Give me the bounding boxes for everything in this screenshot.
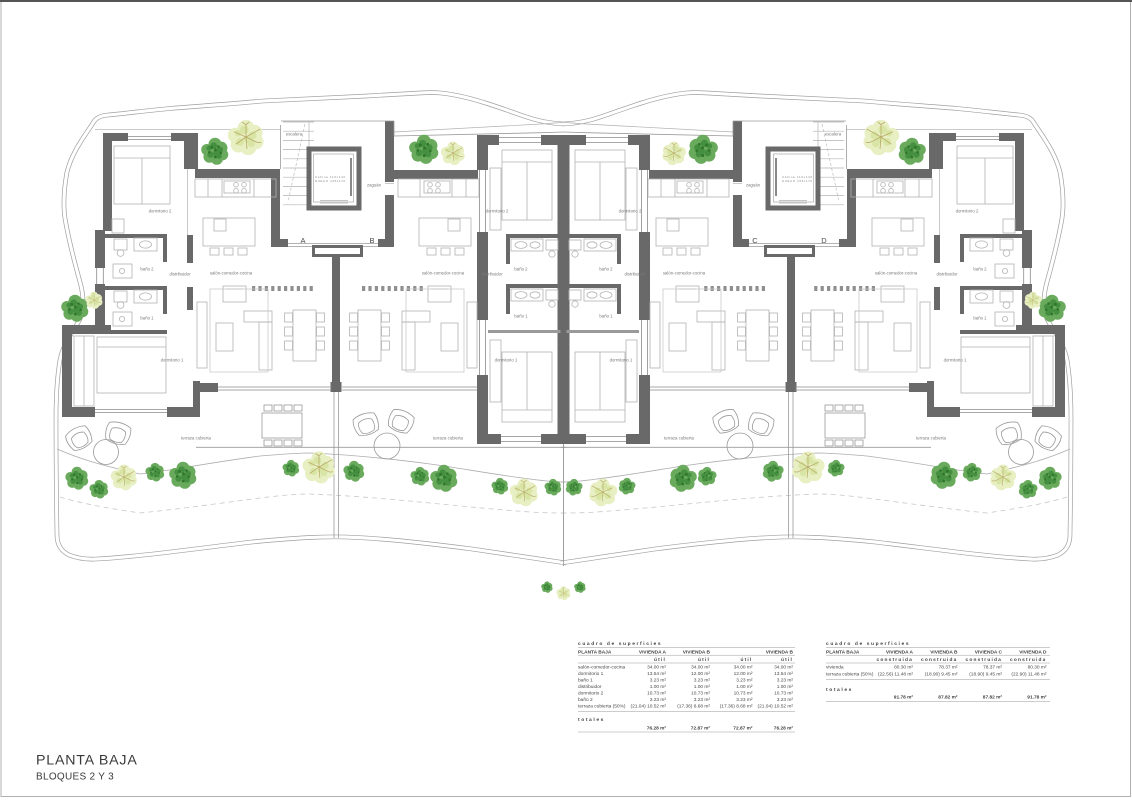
svg-text:(21.04) 10.52 m²: (21.04) 10.52 m²	[758, 704, 794, 710]
svg-text:totales: totales	[578, 717, 605, 723]
svg-text:útil: útil	[654, 657, 666, 663]
svg-text:dormitorio 2: dormitorio 2	[578, 691, 604, 697]
svg-text:PLANTA BAJA: PLANTA BAJA	[578, 650, 612, 656]
svg-text:34.00 m²: 34.00 m²	[647, 665, 666, 671]
svg-text:3.23 m²: 3.23 m²	[650, 697, 667, 703]
svg-text:80.30 m²: 80.30 m²	[894, 665, 913, 671]
svg-text:cuadro de superficies: cuadro de superficies	[826, 641, 910, 647]
svg-text:dormitorio 1: dormitorio 1	[578, 671, 604, 677]
svg-text:dormitorio 2: dormitorio 2	[486, 209, 509, 214]
svg-text:10.73 m²: 10.73 m²	[774, 691, 793, 697]
svg-text:VIVIENDA C: VIVIENDA C	[975, 650, 1003, 656]
svg-text:útil: útil	[698, 657, 710, 663]
svg-text:distribuidor: distribuidor	[578, 684, 602, 690]
svg-text:terraza cubierta (50%): terraza cubierta (50%)	[578, 704, 626, 710]
svg-text:76.28 m²: 76.28 m²	[774, 726, 794, 732]
svg-text:3.23 m²: 3.23 m²	[777, 697, 794, 703]
svg-text:dormitorio 2: dormitorio 2	[149, 209, 172, 214]
svg-text:escalera: escalera	[286, 132, 303, 137]
svg-text:totales: totales	[826, 687, 853, 693]
svg-text:87.82 m²: 87.82 m²	[938, 695, 958, 701]
svg-text:baño 1: baño 1	[973, 316, 987, 321]
svg-text:12.00 m²: 12.00 m²	[734, 671, 753, 677]
svg-text:10.73 m²: 10.73 m²	[734, 691, 753, 697]
svg-text:10.73 m²: 10.73 m²	[691, 691, 710, 697]
svg-text:VIVIENDA B: VIVIENDA B	[683, 650, 711, 656]
svg-text:(22.56) 11.48 m²: (22.56) 11.48 m²	[878, 672, 914, 678]
svg-text:zaguán: zaguán	[746, 183, 761, 188]
svg-text:(17.36) 8.68 m²: (17.36) 8.68 m²	[677, 704, 710, 710]
svg-text:distribuidor: distribuidor	[481, 272, 503, 277]
svg-text:VIVIENDA B: VIVIENDA B	[766, 650, 794, 656]
svg-text:VIVIENDA B: VIVIENDA B	[930, 650, 958, 656]
svg-text:baño 2: baño 2	[514, 267, 528, 272]
svg-text:13.54 m²: 13.54 m²	[647, 671, 666, 677]
svg-text:34.00 m²: 34.00 m²	[774, 665, 793, 671]
svg-text:baño 2: baño 2	[599, 267, 613, 272]
svg-text:10.73 m²: 10.73 m²	[647, 691, 666, 697]
svg-text:1.00 m²: 1.00 m²	[777, 684, 794, 690]
svg-text:salón-comedor-cocina: salón-comedor-cocina	[210, 271, 253, 276]
svg-text:78.37 m²: 78.37 m²	[983, 665, 1002, 671]
svg-text:91.78 m²: 91.78 m²	[894, 695, 914, 701]
svg-text:13.54 m²: 13.54 m²	[774, 671, 793, 677]
svg-text:distribuidor: distribuidor	[936, 272, 958, 277]
svg-text:baño 1: baño 1	[578, 678, 593, 684]
svg-text:baño 1: baño 1	[599, 314, 613, 319]
svg-text:útil: útil	[781, 657, 793, 663]
svg-text:BLOQUES 2 Y 3: BLOQUES 2 Y 3	[36, 772, 114, 783]
svg-text:76.28 m²: 76.28 m²	[647, 726, 667, 732]
svg-text:dormitorio 1: dormitorio 1	[161, 358, 184, 363]
svg-text:terraza cubierta: terraza cubierta	[433, 436, 463, 441]
svg-text:útil: útil	[741, 657, 753, 663]
svg-text:72.87 m²: 72.87 m²	[733, 726, 753, 732]
svg-text:80.30 m²: 80.30 m²	[1028, 665, 1047, 671]
svg-text:78.37 m²: 78.37 m²	[939, 665, 958, 671]
svg-text:34.00 m²: 34.00 m²	[734, 665, 753, 671]
svg-text:(18.90) 9.45 m²: (18.90) 9.45 m²	[925, 672, 958, 678]
svg-text:PLANTA BAJA: PLANTA BAJA	[826, 650, 860, 656]
svg-text:distribuidor: distribuidor	[624, 272, 646, 277]
svg-text:HUECO 165x170: HUECO 165x170	[782, 179, 812, 183]
svg-text:D: D	[821, 236, 827, 245]
svg-text:72.87 m²: 72.87 m²	[691, 726, 711, 732]
svg-text:C: C	[752, 236, 758, 245]
svg-text:3.23 m²: 3.23 m²	[694, 678, 711, 684]
svg-text:(21.04) 10.52 m²: (21.04) 10.52 m²	[631, 704, 667, 710]
svg-text:salón-comedor-cocina: salón-comedor-cocina	[875, 271, 918, 276]
svg-text:VIVIENDA A: VIVIENDA A	[886, 650, 914, 656]
svg-text:PLANTA BAJA: PLANTA BAJA	[36, 753, 138, 769]
svg-text:zaguán: zaguán	[367, 183, 382, 188]
svg-text:salón-comedor-cocina: salón-comedor-cocina	[578, 665, 626, 671]
svg-text:VIVIENDA A: VIVIENDA A	[639, 650, 667, 656]
svg-text:dormitorio 1: dormitorio 1	[610, 358, 633, 363]
svg-text:VIVIENDA D: VIVIENDA D	[1019, 650, 1047, 656]
svg-text:salón-comedor-cocina: salón-comedor-cocina	[422, 271, 465, 276]
svg-text:escalera: escalera	[825, 132, 842, 137]
svg-text:distribuidor: distribuidor	[169, 272, 191, 277]
svg-text:1.00 m²: 1.00 m²	[736, 684, 753, 690]
svg-text:(17.36) 8.68 m²: (17.36) 8.68 m²	[720, 704, 753, 710]
svg-text:cuadro de superficies: cuadro de superficies	[578, 641, 662, 647]
svg-text:dormitorio 2: dormitorio 2	[956, 209, 979, 214]
svg-text:3.23 m²: 3.23 m²	[736, 678, 753, 684]
svg-text:3.23 m²: 3.23 m²	[694, 697, 711, 703]
svg-text:terraza cubierta (50%): terraza cubierta (50%)	[826, 672, 874, 678]
svg-text:12.00 m²: 12.00 m²	[691, 671, 710, 677]
svg-text:(18.90) 9.45 m²: (18.90) 9.45 m²	[969, 672, 1002, 678]
svg-text:baño 2: baño 2	[140, 267, 154, 272]
svg-text:construida: construida	[965, 657, 1002, 663]
svg-text:dormitorio 2: dormitorio 2	[619, 209, 642, 214]
svg-text:salón-comedor-cocina: salón-comedor-cocina	[663, 271, 706, 276]
svg-text:34.00 m²: 34.00 m²	[691, 665, 710, 671]
svg-text:dormitorio 1: dormitorio 1	[495, 358, 518, 363]
svg-text:1.00 m²: 1.00 m²	[694, 684, 711, 690]
svg-text:construida: construida	[876, 657, 913, 663]
svg-text:3.23 m²: 3.23 m²	[777, 678, 794, 684]
svg-text:construida: construida	[1010, 657, 1047, 663]
svg-text:baño 1: baño 1	[514, 314, 528, 319]
svg-text:(22.90) 11.48 m²: (22.90) 11.48 m²	[1011, 672, 1047, 678]
svg-text:terraza cubierta: terraza cubierta	[181, 436, 211, 441]
svg-text:3.23 m²: 3.23 m²	[736, 697, 753, 703]
svg-text:dormitorio 1: dormitorio 1	[944, 358, 967, 363]
svg-text:91.78 m²: 91.78 m²	[1027, 695, 1047, 701]
svg-text:terraza cubierta: terraza cubierta	[664, 436, 694, 441]
svg-text:3.23 m²: 3.23 m²	[650, 678, 667, 684]
svg-text:baño 2: baño 2	[973, 267, 987, 272]
svg-text:87.82 m²: 87.82 m²	[983, 695, 1003, 701]
svg-text:baño 2: baño 2	[578, 697, 593, 703]
svg-text:A: A	[300, 236, 305, 245]
svg-text:construida: construida	[921, 657, 958, 663]
svg-text:terraza cubierta: terraza cubierta	[916, 436, 946, 441]
svg-text:1.00 m²: 1.00 m²	[650, 684, 667, 690]
svg-text:B: B	[369, 236, 374, 245]
svg-text:vivienda: vivienda	[826, 665, 844, 671]
svg-text:baño 1: baño 1	[140, 316, 154, 321]
svg-text:HUECO 165x170: HUECO 165x170	[315, 179, 345, 183]
